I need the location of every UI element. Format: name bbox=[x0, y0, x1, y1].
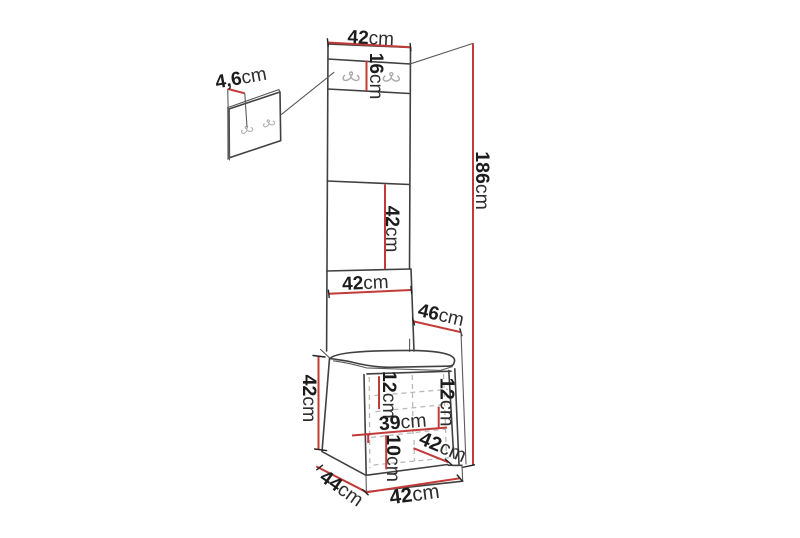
svg-text:10cm: 10cm bbox=[382, 434, 404, 482]
svg-text:42cm: 42cm bbox=[347, 27, 395, 50]
svg-text:42cm: 42cm bbox=[381, 206, 402, 252]
svg-text:186cm: 186cm bbox=[471, 151, 493, 210]
svg-text:12cm: 12cm bbox=[436, 378, 458, 427]
svg-text:42cm: 42cm bbox=[342, 272, 389, 295]
svg-text:39cm: 39cm bbox=[378, 410, 427, 436]
svg-text:16cm: 16cm bbox=[365, 53, 386, 99]
svg-text:42cm: 42cm bbox=[298, 375, 320, 423]
